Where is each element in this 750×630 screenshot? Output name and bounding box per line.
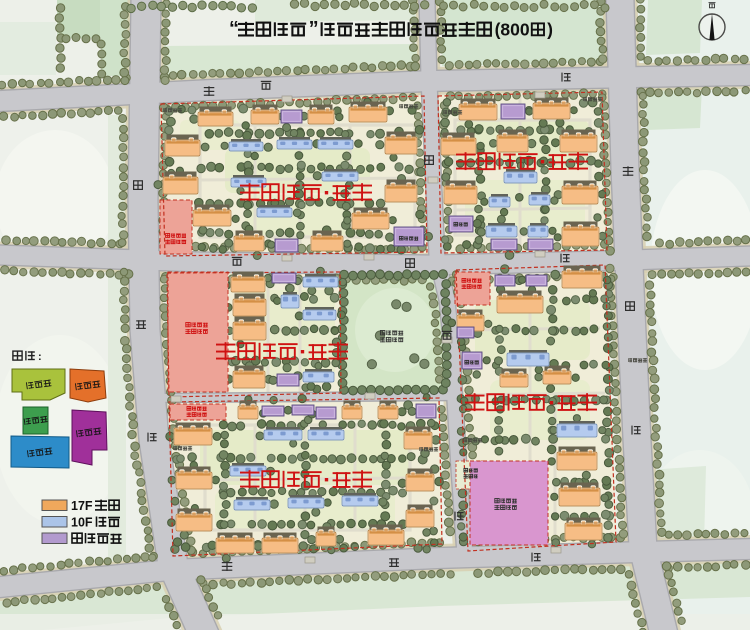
svg-text:(800: (800 [495, 20, 530, 40]
svg-text:”: ” [309, 18, 319, 40]
svg-text:10F: 10F [71, 516, 93, 530]
svg-text::: : [38, 351, 42, 363]
svg-text:“: “ [229, 18, 239, 40]
svg-text:17F: 17F [71, 499, 93, 513]
svg-text:): ) [547, 20, 553, 40]
